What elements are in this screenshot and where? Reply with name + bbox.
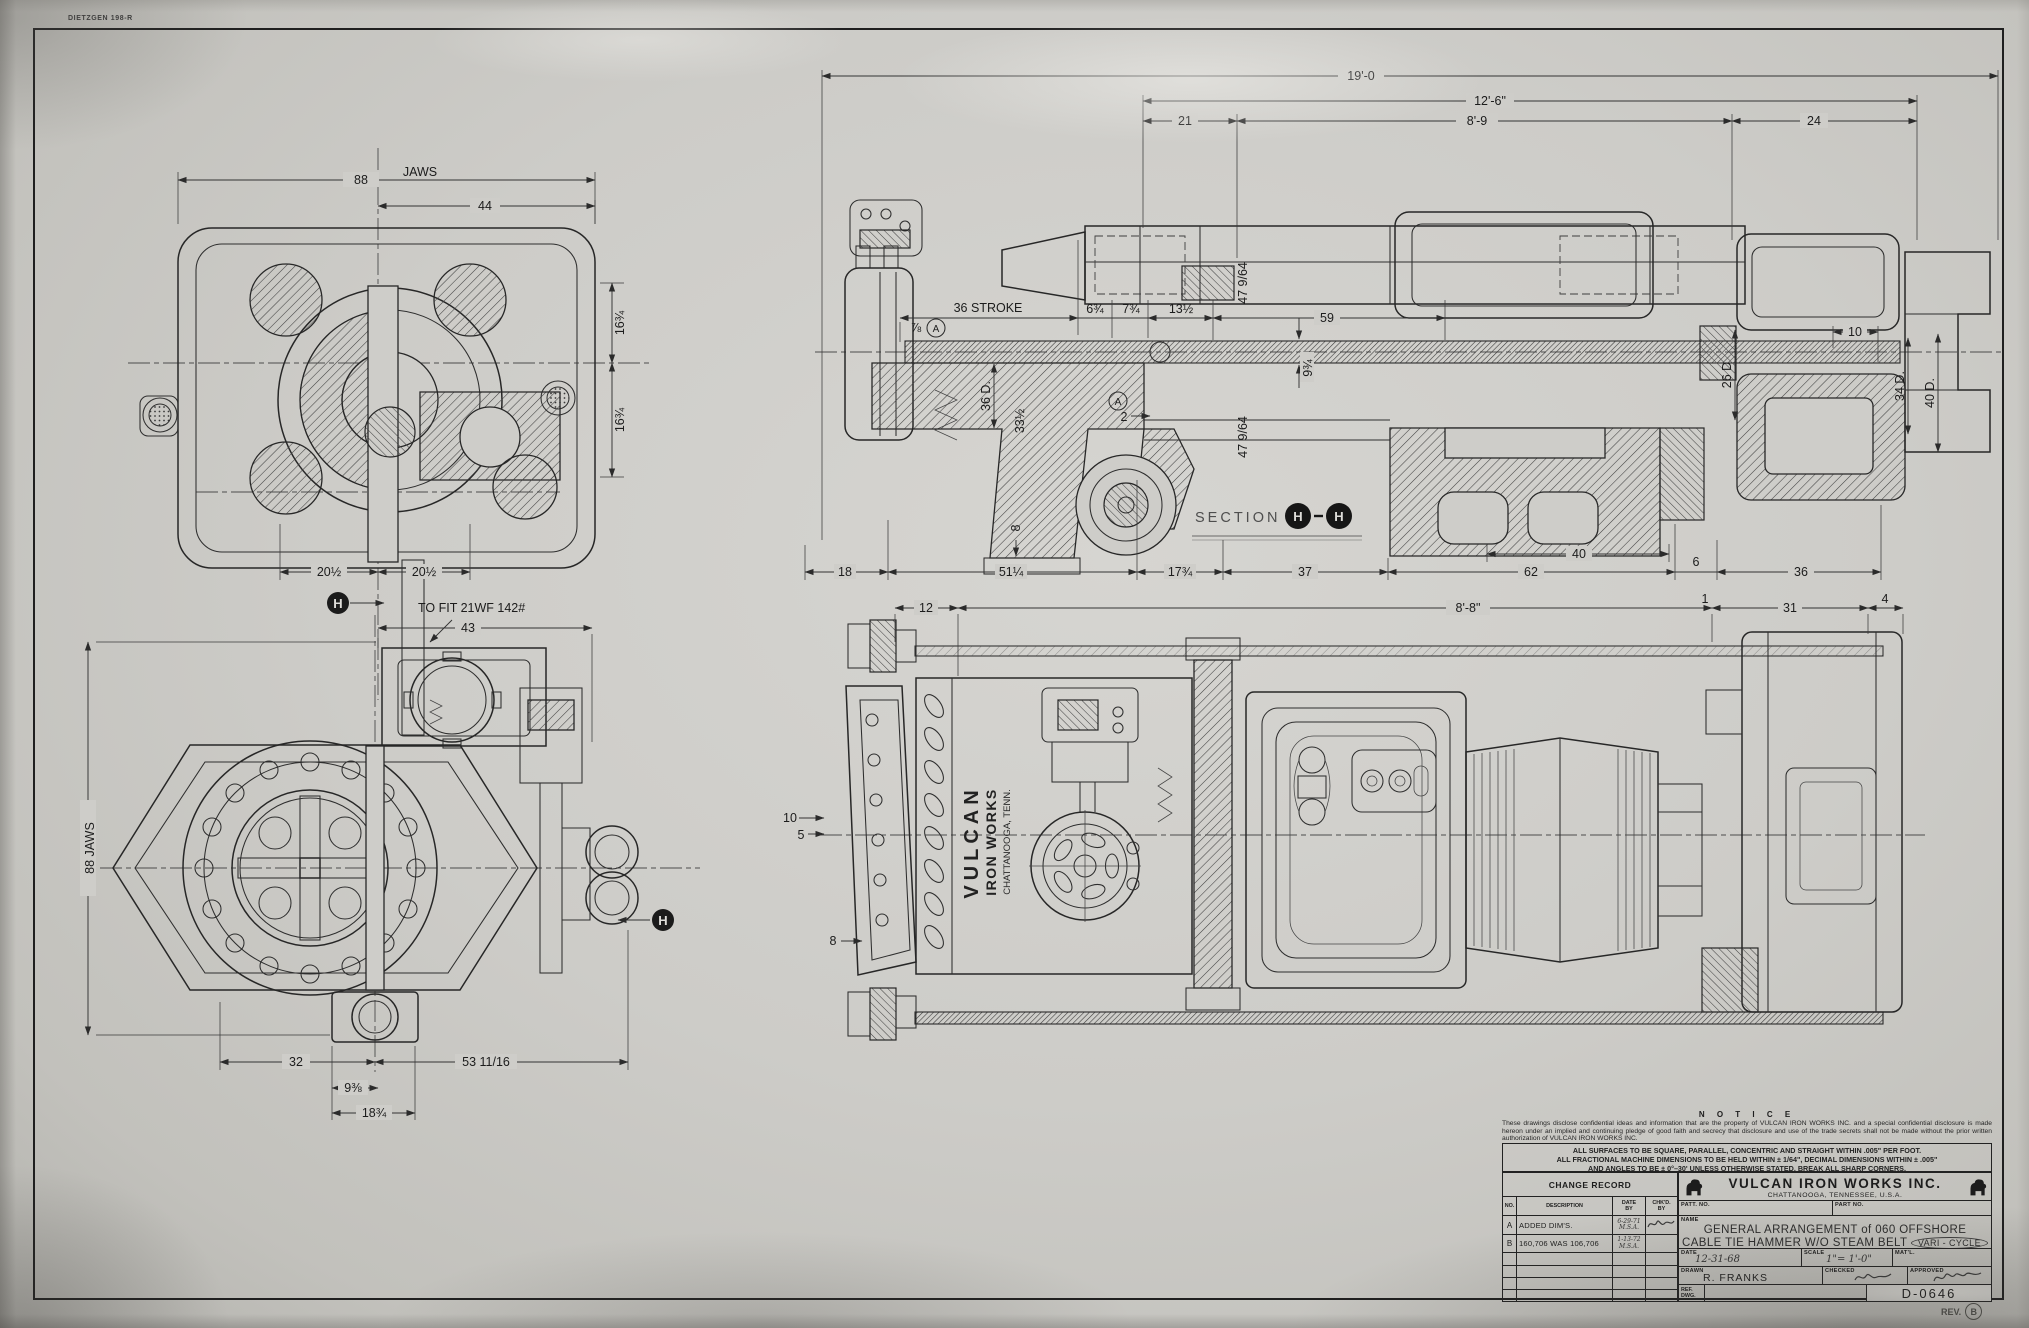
- front-elevation-view: H TO FIT 21WF 142# 43: [80, 592, 700, 1120]
- tolerance-note: ALL SURFACES TO BE SQUARE, PARALLEL, CON…: [1502, 1143, 1992, 1172]
- notice: N O T I C E These drawings disclose conf…: [1502, 1110, 1992, 1143]
- dim-side-12: 12: [919, 601, 933, 615]
- vulcan-logo-icon: [1968, 1176, 1988, 1198]
- svg-text:H: H: [658, 913, 667, 928]
- change-row-empty: [1645, 1289, 1678, 1302]
- dim-b18: 18: [838, 565, 852, 579]
- dim-2: 2: [1121, 410, 1128, 424]
- drawing-sheet: DIETZGEN 198-R: [0, 0, 2029, 1328]
- dim-b17: 17¾: [1168, 565, 1193, 579]
- tolerance-line-3: AND ANGLES TO BE ± 0°–30' UNLESS OTHERWI…: [1503, 1164, 1991, 1172]
- brand-vulcan: VULCAN: [961, 785, 983, 898]
- drawn-value: R. FRANKS: [1703, 1272, 1768, 1284]
- dim-b51: 51¼: [999, 565, 1024, 579]
- change-row-no: B: [1502, 1234, 1517, 1253]
- signature: [1646, 1216, 1676, 1232]
- dim-47-upper: 47 9/64: [1236, 262, 1250, 304]
- change-row-date: 6-29-71M.S.A.: [1612, 1215, 1646, 1235]
- dim-side-31: 31: [1783, 601, 1797, 615]
- section-cut-marker-h: H: [618, 909, 674, 931]
- dim-side-5: 5: [798, 828, 805, 842]
- change-col-no: NO.: [1502, 1196, 1517, 1216]
- dim-b37: 37: [1298, 565, 1312, 579]
- company-name: VULCAN IRON WORKS INC.: [1679, 1176, 1991, 1191]
- change-row-signature: [1645, 1215, 1678, 1235]
- scale-cell: SCALE 1"= 1'-0": [1801, 1248, 1893, 1267]
- scale-value: 1"= 1'-0": [1826, 1254, 1872, 1265]
- dim-10: 10: [1848, 325, 1862, 339]
- svg-text:H: H: [1334, 509, 1343, 524]
- change-col-description: DESCRIPTION: [1516, 1196, 1613, 1216]
- section-label: SECTION H H: [1192, 503, 1362, 540]
- ref-dwg-value-cell: [1704, 1284, 1867, 1302]
- dim-9-38: 9⅜: [344, 1081, 362, 1095]
- notice-body: These drawings disclose confidential ide…: [1502, 1120, 1992, 1143]
- matl-cell: MAT'L.: [1892, 1248, 1992, 1267]
- part-no-cell: PART NO.: [1832, 1200, 1992, 1216]
- change-row-empty: [1612, 1252, 1646, 1266]
- dim-36d: 36 D.: [979, 381, 993, 411]
- dim-side-8: 8: [830, 934, 837, 948]
- dim-b62: 62: [1524, 565, 1538, 579]
- change-row-no: A: [1502, 1215, 1517, 1235]
- dim-20-right: 20½: [412, 565, 437, 579]
- section-view: SECTION H H 19'-0 12'-6": [805, 68, 2002, 580]
- dim-side-4: 4: [1882, 592, 1889, 606]
- dim-44: 44: [478, 199, 492, 213]
- change-row-empty: [1516, 1252, 1613, 1266]
- rev-value: B: [1965, 1303, 1982, 1320]
- revision-mark: REV. B: [1941, 1303, 1982, 1320]
- dim-b6: 6: [1693, 555, 1700, 569]
- change-row-description: ADDED DIM'S.: [1516, 1215, 1613, 1235]
- ref-dwg-cell: REF.DWG.: [1678, 1284, 1705, 1302]
- plan-view: 88 JAWS 44 16¾ 16¾ 20½ 20½: [128, 148, 650, 735]
- dim-19ft: 19'-0: [1347, 69, 1374, 83]
- fit-note: TO FIT 21WF 142#: [418, 601, 525, 615]
- dim-43: 43: [461, 621, 475, 635]
- dim-b36: 36: [1794, 565, 1808, 579]
- change-col-chkd: CHK'D.BY: [1645, 1196, 1678, 1216]
- dim-16-lower: 16¾: [613, 407, 627, 432]
- dim-32: 32: [289, 1055, 303, 1069]
- change-row-date: 1-13-72M.S.A.: [1612, 1234, 1646, 1253]
- dim-6-34: 6¾: [1086, 302, 1104, 316]
- dim-20-left: 20½: [317, 565, 342, 579]
- company-city: CHATTANOOGA, TENNESSEE, U.S.A.: [1679, 1192, 1991, 1199]
- checked-cell: CHECKED: [1822, 1266, 1908, 1285]
- tolerance-line-2: ALL FRACTIONAL MACHINE DIMENSIONS TO BE …: [1503, 1155, 1991, 1164]
- dim-18-34: 18¾: [362, 1106, 387, 1120]
- svg-text:SECTION: SECTION: [1195, 510, 1280, 526]
- dim-34d: 34 D.: [1893, 371, 1907, 401]
- dim-13-12: 13½: [1169, 302, 1194, 316]
- dim-stroke: 36 STROKE: [954, 301, 1023, 315]
- change-row-empty: [1612, 1289, 1646, 1302]
- dim-7-8: ⅞: [911, 321, 922, 335]
- dim-21: 21: [1178, 114, 1192, 128]
- brand-iron-works: IRON WORKS: [983, 788, 999, 896]
- svg-text:H: H: [333, 596, 342, 611]
- change-row-empty: [1502, 1289, 1517, 1302]
- date-value: 12-31-68: [1695, 1254, 1740, 1265]
- title-block: N O T I C E These drawings disclose conf…: [1502, 1110, 1992, 1302]
- change-row-empty: [1645, 1252, 1678, 1266]
- drawing-name-cell: NAME GENERAL ARRANGEMENT of 060 OFFSHORE…: [1678, 1215, 1992, 1249]
- dim-88-jaws: 88 JAWS: [83, 822, 97, 874]
- dim-88: 88: [354, 173, 368, 187]
- datum-a-marker: A: [1115, 397, 1122, 408]
- notice-title: N O T I C E: [1502, 1110, 1992, 1119]
- approved-cell: APPROVED: [1907, 1266, 1992, 1285]
- dim-9-34: 9¾: [1301, 359, 1315, 377]
- dim-side-1: 1: [1702, 592, 1709, 606]
- change-record-title: CHANGE RECORD: [1502, 1172, 1678, 1197]
- dim-59: 59: [1320, 311, 1334, 325]
- change-row-signature: [1645, 1234, 1678, 1253]
- patt-no-cell: PATT. NO.: [1678, 1200, 1833, 1216]
- tolerance-line-1: ALL SURFACES TO BE SQUARE, PARALLEL, CON…: [1503, 1146, 1991, 1155]
- drawing-number: D-0646: [1866, 1284, 1992, 1302]
- vulcan-logo-icon: [1684, 1176, 1704, 1198]
- dim-b40: 40: [1572, 547, 1586, 561]
- rev-label: REV.: [1941, 1307, 1961, 1317]
- dim-40d: 40 D.: [1923, 378, 1937, 408]
- dim-12ft6: 12'-6": [1474, 94, 1506, 108]
- dim-7-34: 7¾: [1122, 302, 1140, 316]
- dim-33-12: 33½: [1013, 408, 1027, 433]
- change-col-date: DATEBY: [1612, 1196, 1646, 1216]
- dim-16-upper: 16¾: [613, 310, 627, 335]
- date-cell: DATE 12-31-68: [1678, 1248, 1802, 1267]
- dim-47-lower: 47 9/64: [1236, 416, 1250, 458]
- section-cut-marker-h: H: [327, 592, 384, 614]
- drawing-title-line1: GENERAL ARRANGEMENT of 060 OFFSHORE: [1679, 1224, 1991, 1236]
- change-row-description: 160,706 WAS 106,706: [1516, 1234, 1613, 1253]
- signature: [1853, 1270, 1893, 1284]
- change-row-empty: [1516, 1289, 1613, 1302]
- dim-8-vert: 8: [1009, 524, 1023, 531]
- dim-side-10: 10: [783, 811, 797, 825]
- datum-a-marker: A: [933, 324, 940, 335]
- jaws-label: JAWS: [403, 165, 437, 179]
- dim-26d: 26 D: [1720, 362, 1734, 388]
- dim-8ft8: 8'-8": [1456, 601, 1481, 615]
- dim-8ft9: 8'-9: [1467, 114, 1488, 128]
- company-block: VULCAN IRON WORKS INC. CHATTANOOGA, TENN…: [1678, 1172, 1992, 1201]
- drawn-cell: DRAWN R. FRANKS: [1678, 1266, 1823, 1285]
- change-row-empty: [1502, 1252, 1517, 1266]
- side-elevation-view: 10 5 8 VULCAN IRON WORKS CHATTANOOGA, TE…: [783, 592, 1925, 1040]
- brand-city: CHATTANOOGA, TENN.: [1002, 789, 1013, 895]
- svg-text:H: H: [1293, 509, 1302, 524]
- dim-53: 53 11/16: [462, 1055, 510, 1069]
- dim-24: 24: [1807, 114, 1821, 128]
- signature: [1932, 1269, 1984, 1284]
